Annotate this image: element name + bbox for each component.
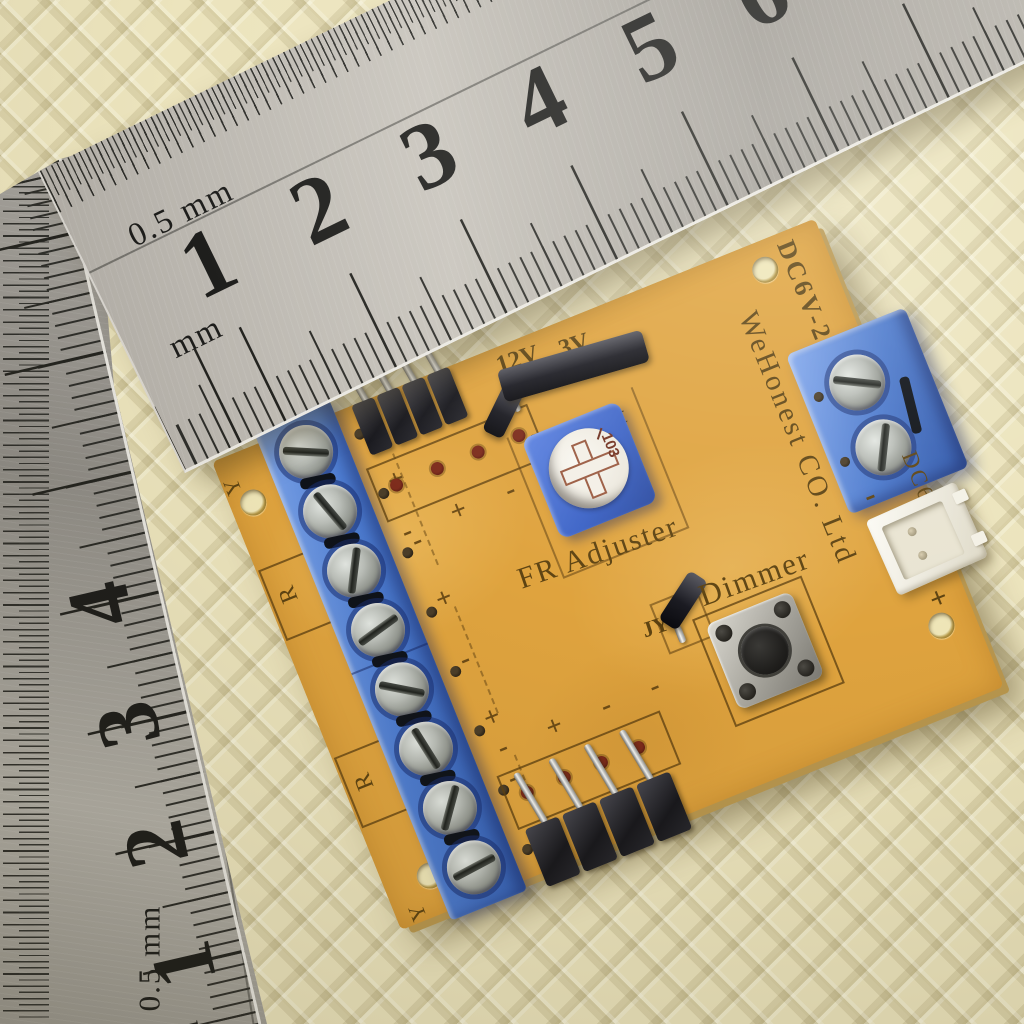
button-corner-dot-1 (713, 622, 735, 644)
top-ruler-number-6: 6 (715, 0, 806, 52)
screw-slot (833, 376, 882, 389)
button-corner-dot-3 (736, 681, 758, 703)
terminal-pin-hole (812, 390, 825, 403)
screw-slot (347, 547, 361, 594)
left-ruler-fine-label: 0.5 mm (131, 905, 167, 1012)
top-ruler-number-4: 4 (494, 40, 585, 160)
screw-slot (378, 681, 425, 698)
terminal-pin-hole (449, 664, 463, 678)
jst-cavity (881, 501, 965, 581)
aux-plus: + (924, 580, 953, 618)
terminal-screw (821, 346, 894, 419)
photo-scene: Y Y R R -+-+-+-+ - + - - 12V 3V J-output (0, 0, 1024, 1024)
header-pin (618, 729, 654, 782)
trimpot-dial: 103 (537, 416, 641, 520)
screw-slot (440, 785, 460, 832)
top-ruler-number-2: 2 (273, 148, 364, 268)
top-ruler-number-1: 1 (162, 202, 253, 322)
header-pin (583, 743, 619, 796)
button-corner-dot-4 (795, 657, 817, 679)
screw-slot (410, 727, 441, 771)
header-pin (513, 771, 549, 824)
header-pin (548, 757, 584, 810)
screw-slot (283, 447, 330, 458)
top-ruler-number-3: 3 (383, 94, 474, 214)
top-ruler-number-5: 5 (604, 0, 695, 106)
terminal-pin-hole (473, 724, 487, 738)
screw-slot (877, 423, 890, 472)
screw-slot (312, 491, 348, 532)
button-corner-dot-2 (771, 599, 793, 621)
terminal-pin-hole (425, 605, 439, 619)
screw-slot (357, 613, 399, 647)
button-plunger (734, 619, 796, 681)
screw-slot (452, 853, 497, 882)
terminal-pin-hole (839, 455, 852, 468)
